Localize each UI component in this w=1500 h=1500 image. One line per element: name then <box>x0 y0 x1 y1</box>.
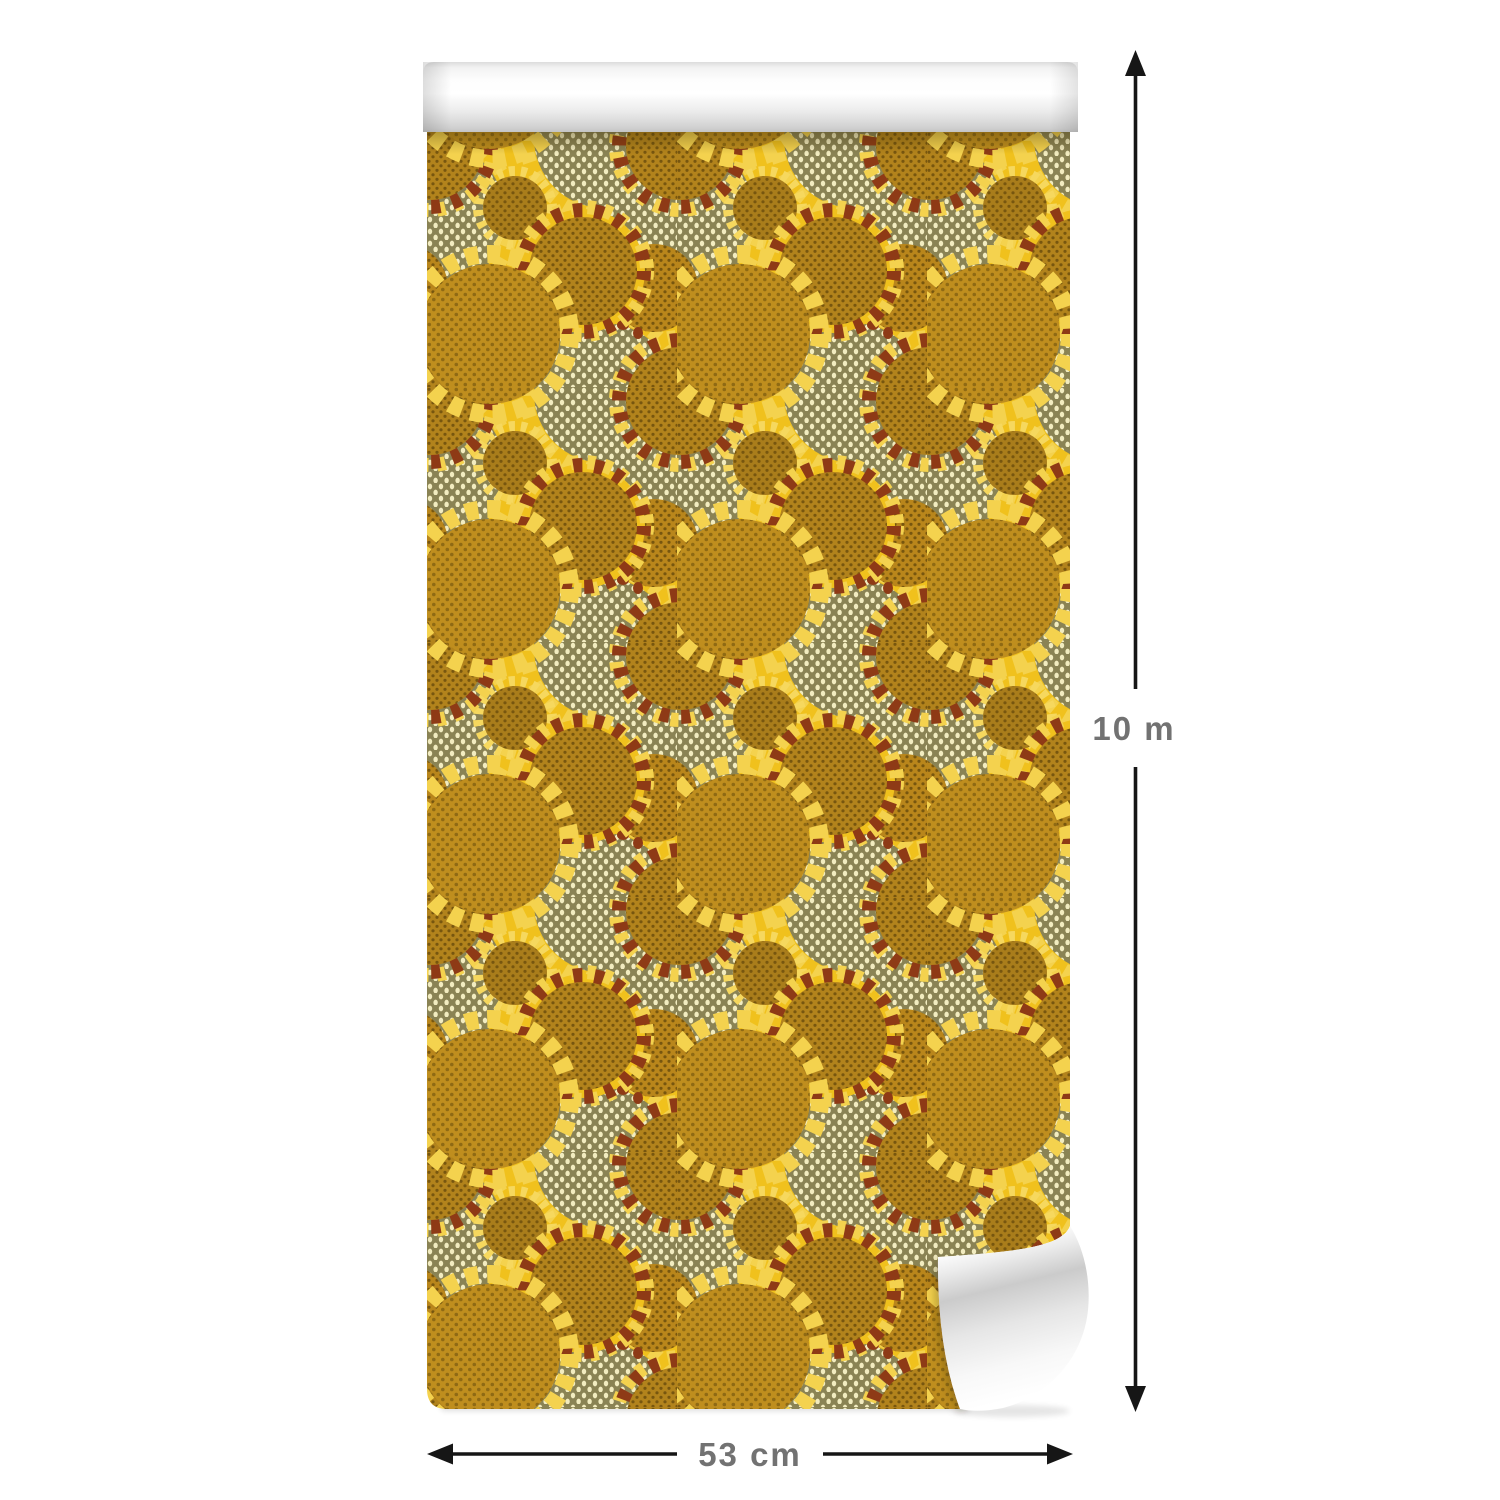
arrow-down-icon <box>1125 1386 1146 1412</box>
width-label: 53 cm <box>698 1436 802 1473</box>
cylinder-end-right <box>1050 62 1078 132</box>
wallpaper-roll-mockup: 10 m 53 cm <box>0 0 1500 1500</box>
roll-cylinder <box>423 62 1078 132</box>
cylinder-end-left <box>423 62 451 132</box>
cylinder-cast-shadow <box>427 132 1070 154</box>
arrow-right-icon <box>1047 1444 1073 1465</box>
cylinder-body <box>423 62 1078 132</box>
sunflower-pattern <box>427 130 1070 1411</box>
height-label: 10 m <box>1092 710 1175 747</box>
wallpaper-sheet <box>427 130 1070 1411</box>
product-mockup: 10 m 53 cm <box>0 0 1500 1500</box>
